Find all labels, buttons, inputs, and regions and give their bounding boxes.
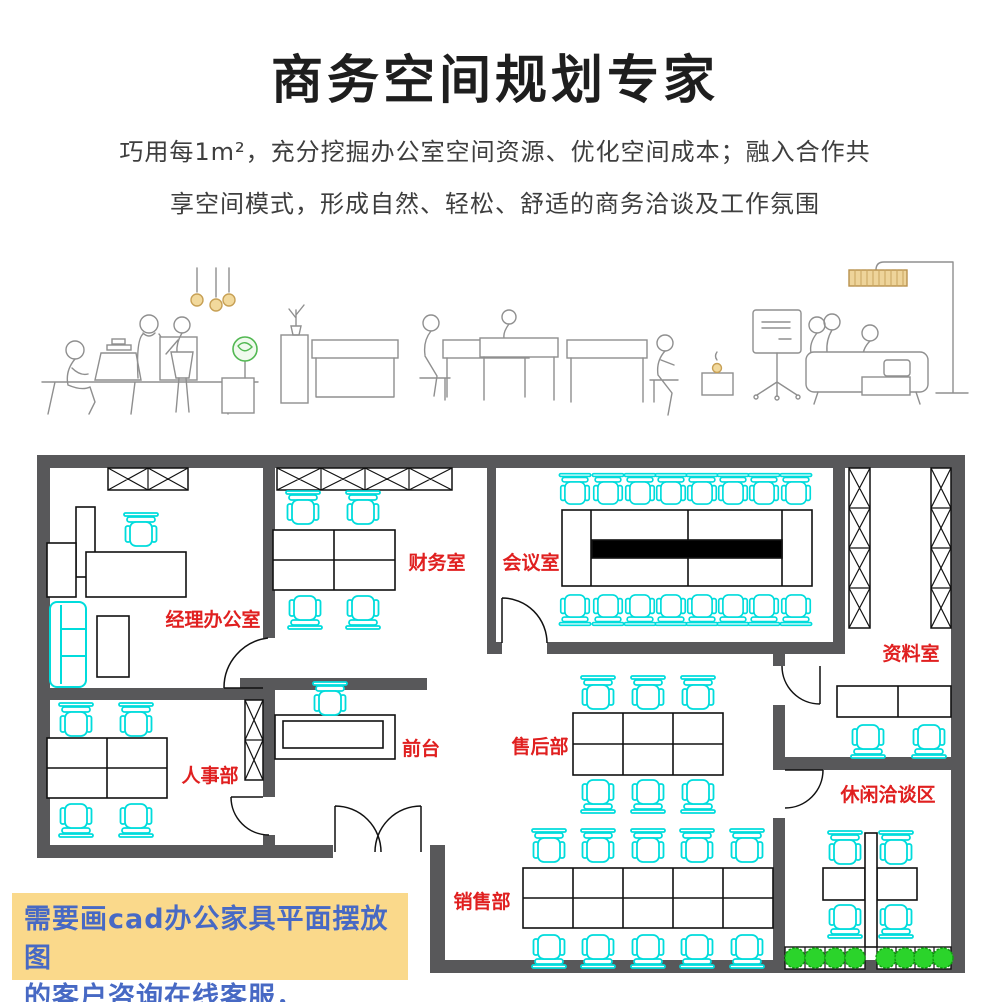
office-chair-icon — [680, 829, 714, 862]
scene-graphic: 经理办公室 财务室 会议室 资料室 人事部 前台 售后部 休闲洽谈区 销售部 — [0, 0, 990, 1002]
plant-icon — [895, 948, 915, 968]
office-chair-icon — [686, 595, 717, 625]
person-head-icon — [174, 317, 190, 333]
office-chair-icon — [748, 474, 779, 504]
office-chair-icon — [828, 905, 862, 938]
plan-furniture — [47, 507, 951, 947]
cta-note-line-1: 需要画cad办公家具平面摆放图 — [24, 900, 408, 978]
office-chair-icon — [532, 935, 566, 968]
office-chair-icon — [624, 474, 655, 504]
office-chair-icon — [532, 829, 566, 862]
office-chair-icon — [631, 780, 665, 813]
office-chair-icon — [313, 682, 347, 715]
office-chair-icon — [631, 935, 665, 968]
person-head-icon — [423, 315, 439, 331]
room-label-front-desk: 前台 — [402, 737, 440, 760]
office-chair-icon — [559, 595, 590, 625]
office-chair-icon — [730, 829, 764, 862]
conference-table — [562, 510, 812, 586]
room-label-finance: 财务室 — [408, 551, 465, 574]
sales-desks — [523, 868, 773, 928]
office-chair-icon — [879, 905, 913, 938]
plant-icon — [914, 948, 934, 968]
cabinet-icon — [47, 543, 76, 597]
office-chair-icon — [124, 513, 158, 546]
office-chair-icon — [912, 725, 946, 758]
office-chair-icon — [581, 780, 615, 813]
office-chair-icon — [655, 595, 686, 625]
office-chair-icon — [346, 491, 380, 524]
room-label-lounge: 休闲洽谈区 — [839, 783, 935, 806]
person-head-icon — [824, 314, 840, 330]
office-chair-icon — [581, 829, 615, 862]
office-chair-icon — [681, 676, 715, 709]
office-chair-icon — [59, 804, 93, 837]
person-head-icon — [657, 335, 673, 351]
office-chair-icon — [730, 935, 764, 968]
office-chair-icon — [631, 829, 665, 862]
room-label-meeting: 会议室 — [502, 551, 559, 574]
office-chair-icon — [655, 474, 686, 504]
reception-desk — [275, 715, 395, 759]
illustration-lounge-group — [753, 262, 968, 404]
plant-icon — [825, 948, 845, 968]
plant-icon — [845, 948, 865, 968]
cta-note: 需要画cad办公家具平面摆放图 的客户咨询在线客服， — [12, 893, 408, 980]
door-icon — [502, 598, 547, 643]
office-chair-icon — [681, 780, 715, 813]
office-chair-icon — [288, 596, 322, 629]
coffee-cup-icon — [713, 364, 722, 373]
office-chair-icon — [119, 804, 153, 837]
office-chair-icon — [828, 831, 862, 864]
pendant-lamps-icon — [191, 268, 235, 311]
illustration-bench-group — [42, 315, 258, 414]
office-chair-icon — [717, 474, 748, 504]
person-head-icon — [809, 317, 825, 333]
cta-note-line-2: 的客户咨询在线客服， — [24, 978, 408, 1002]
coffee-table — [97, 616, 129, 677]
office-chair-icon — [780, 595, 811, 625]
after-sales-desks — [573, 713, 723, 775]
office-chair-icon — [680, 935, 714, 968]
archive-desk — [837, 686, 951, 717]
room-label-manager-office: 经理办公室 — [165, 608, 260, 631]
office-chair-icon — [286, 491, 320, 524]
flipchart-icon — [753, 310, 801, 353]
person-head-icon — [862, 325, 878, 341]
plant-icon — [933, 948, 953, 968]
office-chair-icon — [748, 595, 779, 625]
office-chair-icon — [346, 596, 380, 629]
office-chair-icon — [717, 595, 748, 625]
person-head-icon — [502, 310, 516, 324]
office-chair-icon — [119, 703, 153, 736]
office-chair-icon — [631, 676, 665, 709]
illustration-desks-group — [281, 305, 733, 415]
office-chair-icon — [851, 725, 885, 758]
sofa-plan-icon — [50, 602, 86, 687]
page: 商务空间规划专家 巧用每1m²，充分挖掘办公室空间资源、优化空间成本；融入合作共… — [0, 0, 990, 1002]
office-chair-icon — [592, 595, 623, 625]
office-chair-icon — [879, 831, 913, 864]
person-head-icon — [66, 341, 84, 359]
office-chair-icon — [59, 703, 93, 736]
finance-desks — [273, 530, 395, 590]
office-chair-icon — [780, 474, 811, 504]
door-icon — [782, 666, 820, 704]
door-icon — [231, 797, 269, 835]
door-icon — [785, 770, 823, 808]
person-head-icon — [140, 315, 158, 333]
manager-desk — [86, 552, 186, 597]
plant-icon — [805, 948, 825, 968]
hr-desks — [47, 738, 167, 798]
plant-icon — [876, 948, 896, 968]
plant-icon — [785, 948, 805, 968]
office-chair-icon — [686, 474, 717, 504]
office-chair-icon — [624, 595, 655, 625]
office-chair-icon — [592, 474, 623, 504]
double-door-icon — [335, 806, 421, 852]
office-illustration — [42, 262, 968, 415]
room-label-sales: 销售部 — [453, 890, 510, 913]
office-chair-icon — [581, 935, 615, 968]
plant-icon — [233, 337, 257, 361]
room-label-after-sales: 售后部 — [510, 735, 568, 758]
office-chair-icon — [581, 676, 615, 709]
room-label-hr: 人事部 — [181, 764, 238, 787]
office-chair-icon — [559, 474, 590, 504]
room-label-archive: 资料室 — [882, 642, 939, 665]
